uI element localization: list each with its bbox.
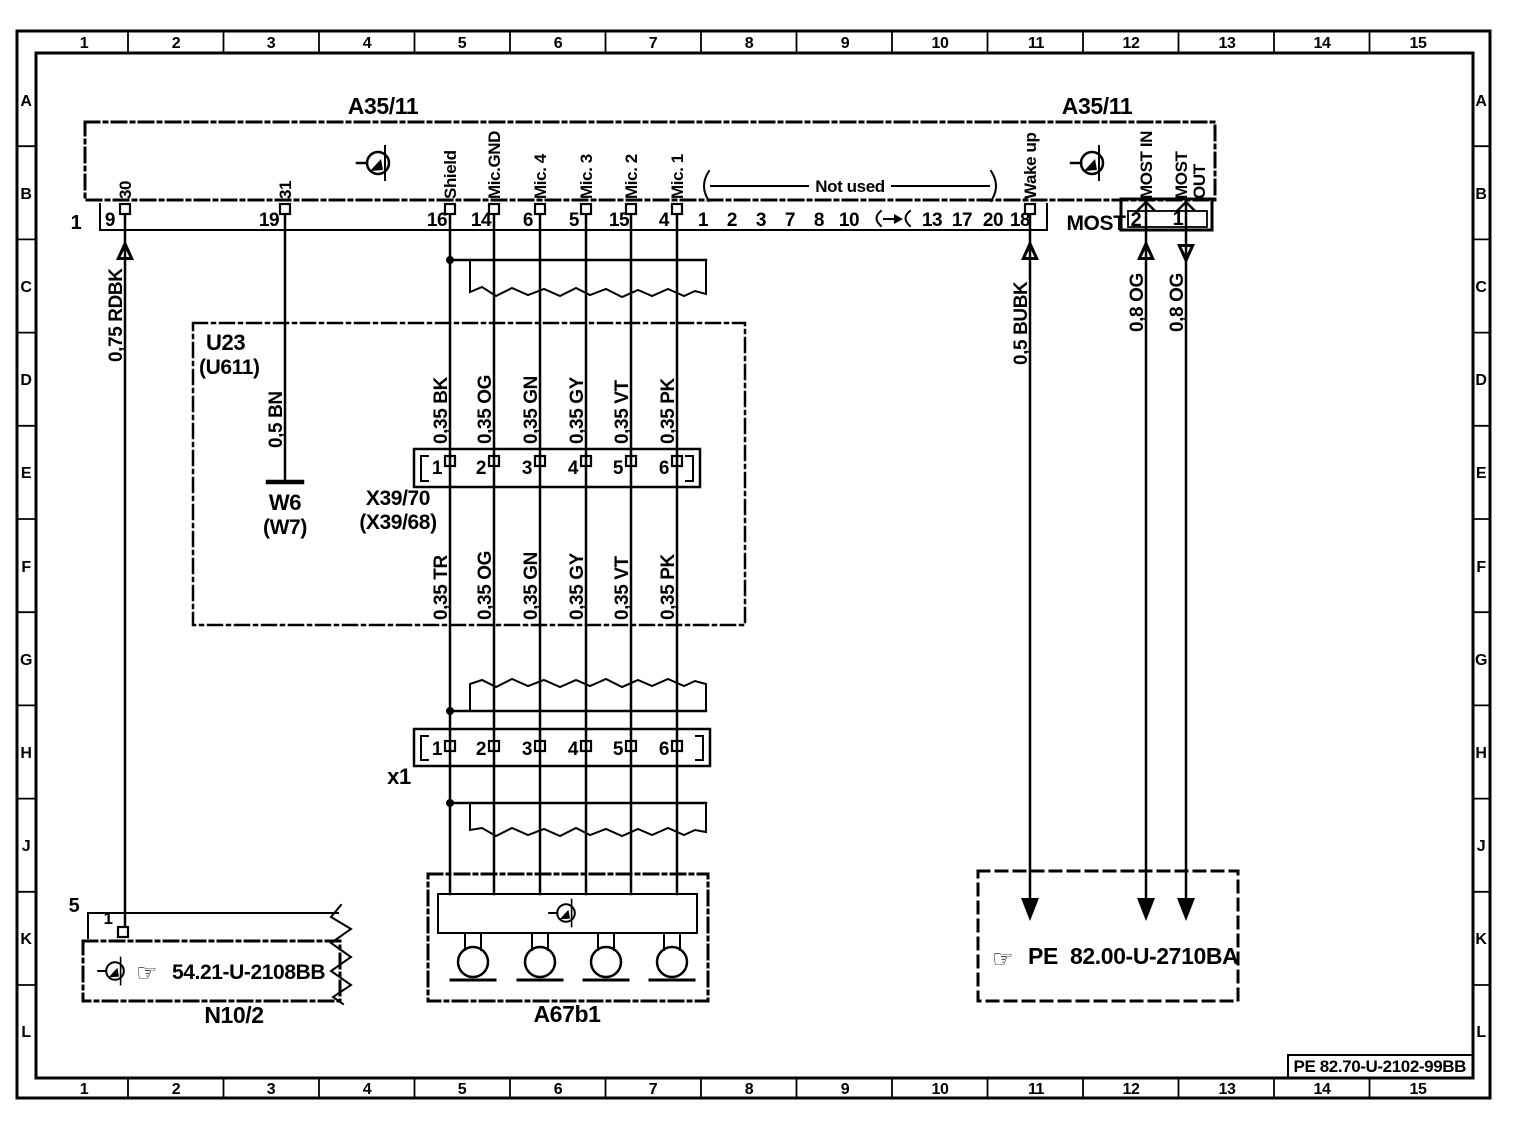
signal-label: Mic. 4 <box>531 153 550 199</box>
pin-terminal <box>535 204 545 214</box>
grid-col-label: 7 <box>649 35 658 52</box>
grid-col-label: 11 <box>1028 1081 1045 1098</box>
x39-alt-label: (X39/68) <box>359 511 436 534</box>
grid-row-label: J <box>22 838 31 855</box>
grid-col-label: 13 <box>1219 35 1236 52</box>
w6-alt-label: (W7) <box>263 516 307 539</box>
pin-terminal <box>581 204 591 214</box>
module-label: A35/11 <box>348 93 419 119</box>
pin-terminal <box>489 204 499 214</box>
wire-gauge-label: 0,35 GN <box>521 376 542 444</box>
grid-col-label: 1 <box>80 1081 89 1098</box>
strip-pin-number: 6 <box>523 210 533 231</box>
grid-row-label: B <box>20 186 31 203</box>
u23-alt-label: (U611) <box>199 356 260 379</box>
grid-col-label: 12 <box>1123 35 1140 52</box>
a67b1-label: A67b1 <box>533 1001 601 1027</box>
n10-reference: 54.21-U-2108BB <box>172 961 325 984</box>
strip-pin-number: 3 <box>756 210 766 231</box>
x1-pin-number: 6 <box>659 739 669 760</box>
strip-pin-number: 10 <box>839 210 859 231</box>
most-pin-2: 2 <box>1131 209 1142 231</box>
grid-col-label: 9 <box>841 1081 850 1098</box>
grid-row-label: G <box>1475 652 1487 669</box>
x39-pin-number: 2 <box>476 458 486 479</box>
signal-label: Mic. 2 <box>622 154 641 199</box>
pointer-hand-icon: ☞ <box>136 960 157 987</box>
strip-pin-number: 17 <box>952 210 972 231</box>
signal-label: Mic. 1 <box>668 154 687 199</box>
wire-gauge-label: 0,35 VT <box>612 379 633 444</box>
grid-col-label: 6 <box>554 1081 563 1098</box>
grid-row-label: K <box>20 931 32 948</box>
pe-reference: 82.00-U-2710BA <box>1070 943 1238 969</box>
page-background <box>0 0 1536 1122</box>
pin-terminal <box>626 204 636 214</box>
grid-row-label: A <box>20 93 32 110</box>
grid-row-label: F <box>21 559 31 576</box>
grid-col-label: 1 <box>80 35 89 52</box>
grid-row-label: C <box>1475 279 1487 296</box>
n10-pin-number: 1 <box>103 909 112 928</box>
grid-col-label: 12 <box>1123 1081 1140 1098</box>
w6-label: W6 <box>269 490 301 515</box>
wire-gauge-label: 0,75 RDBK <box>106 268 127 362</box>
x39-pin-number: 5 <box>613 458 624 479</box>
grid-col-label: 4 <box>363 1081 372 1098</box>
not-used-label: Not used <box>815 177 885 196</box>
module-label: A35/11 <box>1062 93 1133 119</box>
grid-col-label: 8 <box>745 35 754 52</box>
grid-row-label: J <box>1477 838 1486 855</box>
x1-pin-number: 1 <box>432 739 443 760</box>
grid-row-label: E <box>1476 465 1487 482</box>
signal-label: MOST IN <box>1137 131 1156 199</box>
x1-pin-number: 2 <box>476 739 486 760</box>
connector-number: 1 <box>71 212 82 234</box>
grid-row-label: B <box>1475 186 1486 203</box>
grid-row-label: A <box>1475 93 1487 110</box>
wiring-diagram-page: 123456789101112131415 123456789101112131… <box>0 0 1536 1122</box>
x39-label: X39/70 <box>366 487 430 510</box>
pin-terminal <box>1025 204 1035 214</box>
grid-col-label: 7 <box>649 1081 658 1098</box>
grid-col-label: 3 <box>267 1081 276 1098</box>
strip-pin-number: 19 <box>259 210 279 231</box>
drawing-number: PE 82.70-U-2102-99BB <box>1294 1057 1467 1076</box>
strip-pin-number: 1 <box>698 210 709 231</box>
signal-label: Mic.GND <box>485 131 504 199</box>
grid-col-label: 10 <box>932 1081 949 1098</box>
wire-gauge-label: 0,5 BUBK <box>1011 281 1032 365</box>
x1-pin-number: 4 <box>568 739 579 760</box>
ground-w6: W6 (W7) <box>263 482 307 539</box>
wire-gauge-label: 0,35 VT <box>612 555 633 620</box>
grid-col-label: 14 <box>1314 1081 1331 1098</box>
grid-col-label: 6 <box>554 35 563 52</box>
pin-terminal <box>672 204 682 214</box>
signal-label: OUT <box>1190 163 1209 199</box>
strip-pin-number: 7 <box>785 210 795 231</box>
strip-pin-number: 13 <box>922 210 942 231</box>
strip-pin-number: 5 <box>569 210 580 231</box>
strip-pin-number: 9 <box>105 210 115 231</box>
grid-row-label: F <box>1476 559 1486 576</box>
x39-pin-number: 3 <box>522 458 532 479</box>
most-label: MOST <box>1066 212 1126 235</box>
x1-pin-number: 5 <box>613 739 624 760</box>
wire-gauge-label: 0,35 TR <box>431 555 452 620</box>
grid-col-label: 13 <box>1219 1081 1236 1098</box>
wire-gauge-label: 0,8 OG <box>1167 273 1188 332</box>
x39-pin-number: 4 <box>568 458 579 479</box>
grid-row-label: H <box>20 745 31 762</box>
grid-row-label: G <box>20 652 32 669</box>
signal-label: 31 <box>276 181 295 199</box>
strip-pin-number: 4 <box>659 210 670 231</box>
wire-gauge-label: 0,35 GN <box>521 552 542 620</box>
wire-gauge-label: 0,8 OG <box>1127 273 1148 332</box>
signal-label: MOST <box>1172 150 1191 199</box>
signal-label: Mic. 3 <box>577 154 596 199</box>
grid-col-label: 15 <box>1410 35 1427 52</box>
grid-row-label: E <box>21 465 32 482</box>
signal-label: Wake up <box>1021 133 1040 199</box>
grid-col-label: 9 <box>841 35 850 52</box>
most-pin-1: 1 <box>1173 208 1184 230</box>
grid-row-label: H <box>1475 745 1486 762</box>
grid-col-label: 2 <box>172 1081 181 1098</box>
grid-row-label: L <box>1476 1024 1486 1041</box>
strip-pin-number: 8 <box>814 210 824 231</box>
grid-row-label: K <box>1475 931 1487 948</box>
x39-pin-number: 6 <box>659 458 669 479</box>
grid-row-label: D <box>1475 372 1486 389</box>
grid-col-label: 8 <box>745 1081 754 1098</box>
pe-label: PE <box>1028 943 1058 969</box>
wire-gauge-label: 0,35 OG <box>475 375 496 444</box>
grid-col-label: 10 <box>932 35 949 52</box>
wire-gauge-label: 0,35 PK <box>658 377 679 444</box>
signal-label: 30 <box>116 181 135 199</box>
x1-pin-number: 3 <box>522 739 532 760</box>
grid-row-label: L <box>21 1024 31 1041</box>
pointer-hand-icon: ☞ <box>992 946 1013 973</box>
wire-gauge-label: 0,35 GY <box>567 376 588 444</box>
grid-col-label: 2 <box>172 35 181 52</box>
grid-col-label: 15 <box>1410 1081 1427 1098</box>
n10-label: N10/2 <box>204 1002 263 1028</box>
grid-col-label: 14 <box>1314 35 1331 52</box>
grid-col-label: 4 <box>363 35 372 52</box>
grid-col-label: 5 <box>458 35 467 52</box>
wire-gauge-label: 0,35 GY <box>567 552 588 620</box>
wiring-diagram-canvas: 123456789101112131415 123456789101112131… <box>0 0 1536 1122</box>
wire-gauge-label: 0,35 PK <box>658 553 679 620</box>
x1-label: x1 <box>387 764 411 789</box>
u23-label: U23 <box>206 330 245 355</box>
grid-row-label: D <box>20 372 31 389</box>
title-block: PE 82.70-U-2102-99BB <box>1288 1055 1473 1078</box>
pin-terminal <box>445 204 455 214</box>
strip-pin-number: 20 <box>983 210 1003 231</box>
x39-pin-number: 1 <box>432 458 443 479</box>
n10-strip-number: 5 <box>69 895 80 917</box>
pin-terminal <box>120 204 130 214</box>
pin-terminal <box>280 204 290 214</box>
signal-label: Shield <box>441 150 460 199</box>
strip-pin-number: 2 <box>727 210 737 231</box>
grid-col-label: 5 <box>458 1081 467 1098</box>
wire-gauge-label: 0,35 BK <box>431 376 452 444</box>
grid-col-label: 11 <box>1028 35 1045 52</box>
grid-row-label: C <box>20 279 32 296</box>
grid-col-label: 3 <box>267 35 276 52</box>
wire-gauge-label: 0,5 BN <box>266 391 287 448</box>
wire-gauge-label: 0,35 OG <box>475 551 496 620</box>
